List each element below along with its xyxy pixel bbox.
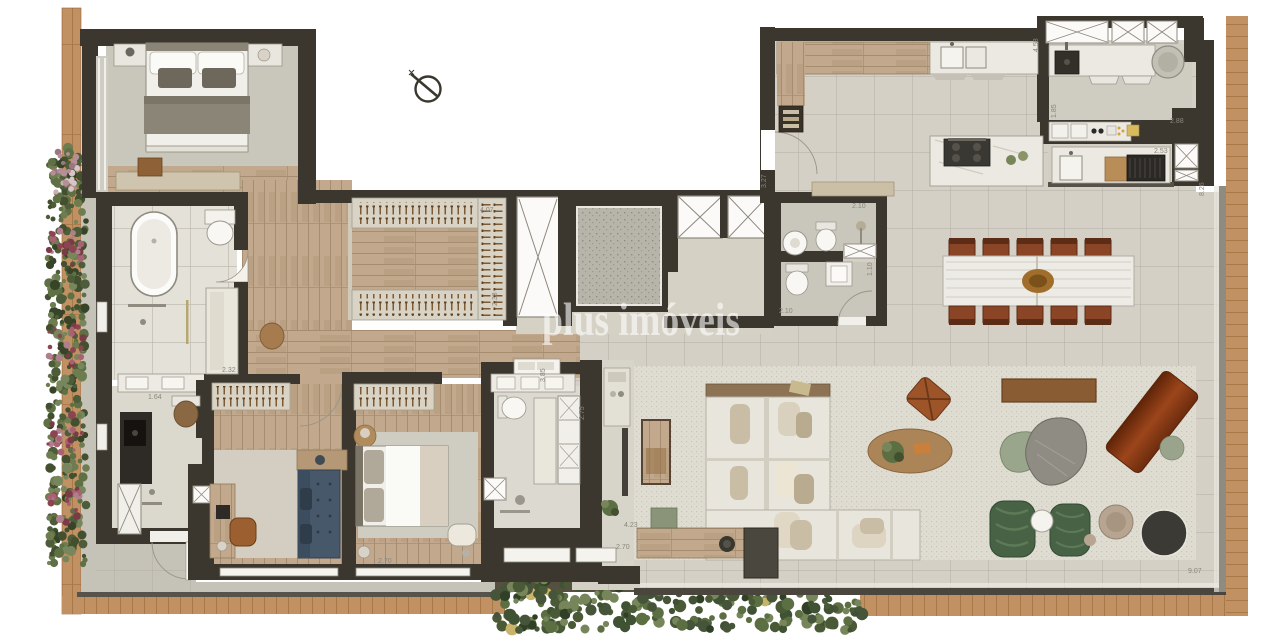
svg-text:2.70: 2.70 <box>378 558 392 565</box>
svg-text:2.38: 2.38 <box>492 292 499 306</box>
svg-text:2.70: 2.70 <box>616 544 630 551</box>
svg-text:1.64: 1.64 <box>148 394 162 401</box>
svg-text:8.26: 8.26 <box>1199 182 1206 196</box>
svg-text:2.53: 2.53 <box>1154 148 1168 155</box>
svg-text:3.27: 3.27 <box>761 174 768 188</box>
svg-text:4.07: 4.07 <box>480 207 494 214</box>
svg-text:1.10: 1.10 <box>867 262 874 276</box>
svg-text:3.85: 3.85 <box>540 368 547 382</box>
svg-text:9.07: 9.07 <box>1188 568 1202 575</box>
svg-text:4.23: 4.23 <box>624 522 638 529</box>
svg-text:2.88: 2.88 <box>1170 118 1184 125</box>
svg-text:1.85: 1.85 <box>1051 104 1058 118</box>
svg-text:2.10: 2.10 <box>779 308 793 315</box>
svg-text:2.32: 2.32 <box>222 367 236 374</box>
svg-text:4.58: 4.58 <box>1033 38 1040 52</box>
svg-text:plus imóveis: plus imóveis <box>542 294 740 346</box>
svg-text:2.75: 2.75 <box>579 406 586 420</box>
svg-text:2.10: 2.10 <box>852 203 866 210</box>
